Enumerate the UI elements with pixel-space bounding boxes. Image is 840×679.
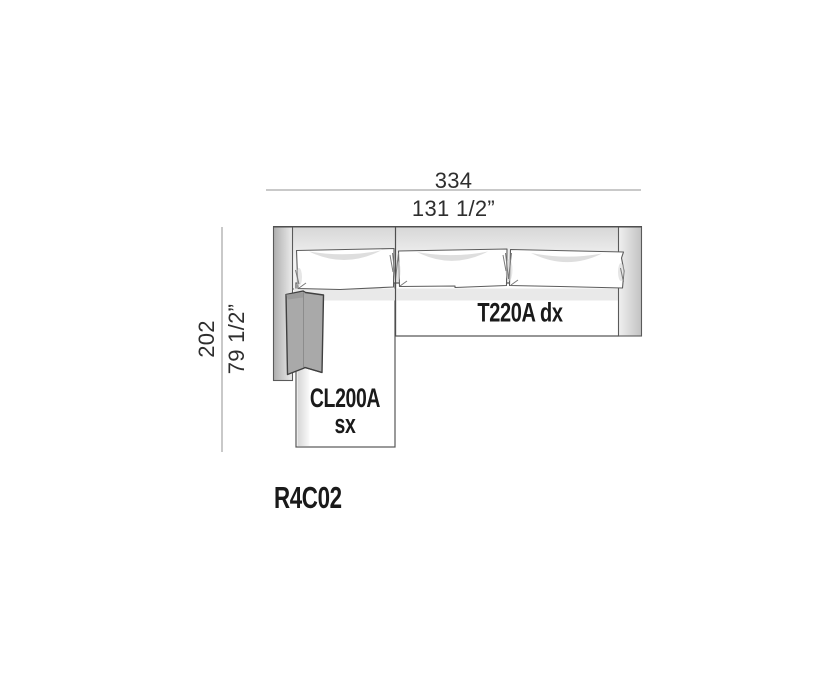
depth-dimension-cm: 202: [194, 320, 220, 358]
back-cushion-3: [510, 250, 625, 289]
module-label-cl200a-code: CL200A: [310, 385, 380, 411]
model-code-label: R4C02: [274, 480, 342, 516]
module-label-cl200a: CL200A sx: [310, 385, 380, 437]
back-cushion-2: [399, 249, 508, 288]
width-dimension-cm: 334: [266, 168, 641, 194]
sofa-plan-drawing: [0, 0, 840, 679]
sofa-spec-diagram: 334 131 1/2” 202 79 1/2” T220A dx CL200A…: [0, 0, 840, 679]
seat-shadow-band: [294, 289, 618, 301]
depth-dimension-line: [221, 227, 223, 452]
module-label-t220a: T220A dx: [477, 298, 562, 329]
module-label-cl200a-orientation: sx: [310, 411, 380, 437]
lumbar-cushion: [286, 291, 324, 375]
width-dimension-inches: 131 1/2”: [266, 196, 641, 222]
depth-dimension-inches: 79 1/2”: [224, 304, 250, 375]
